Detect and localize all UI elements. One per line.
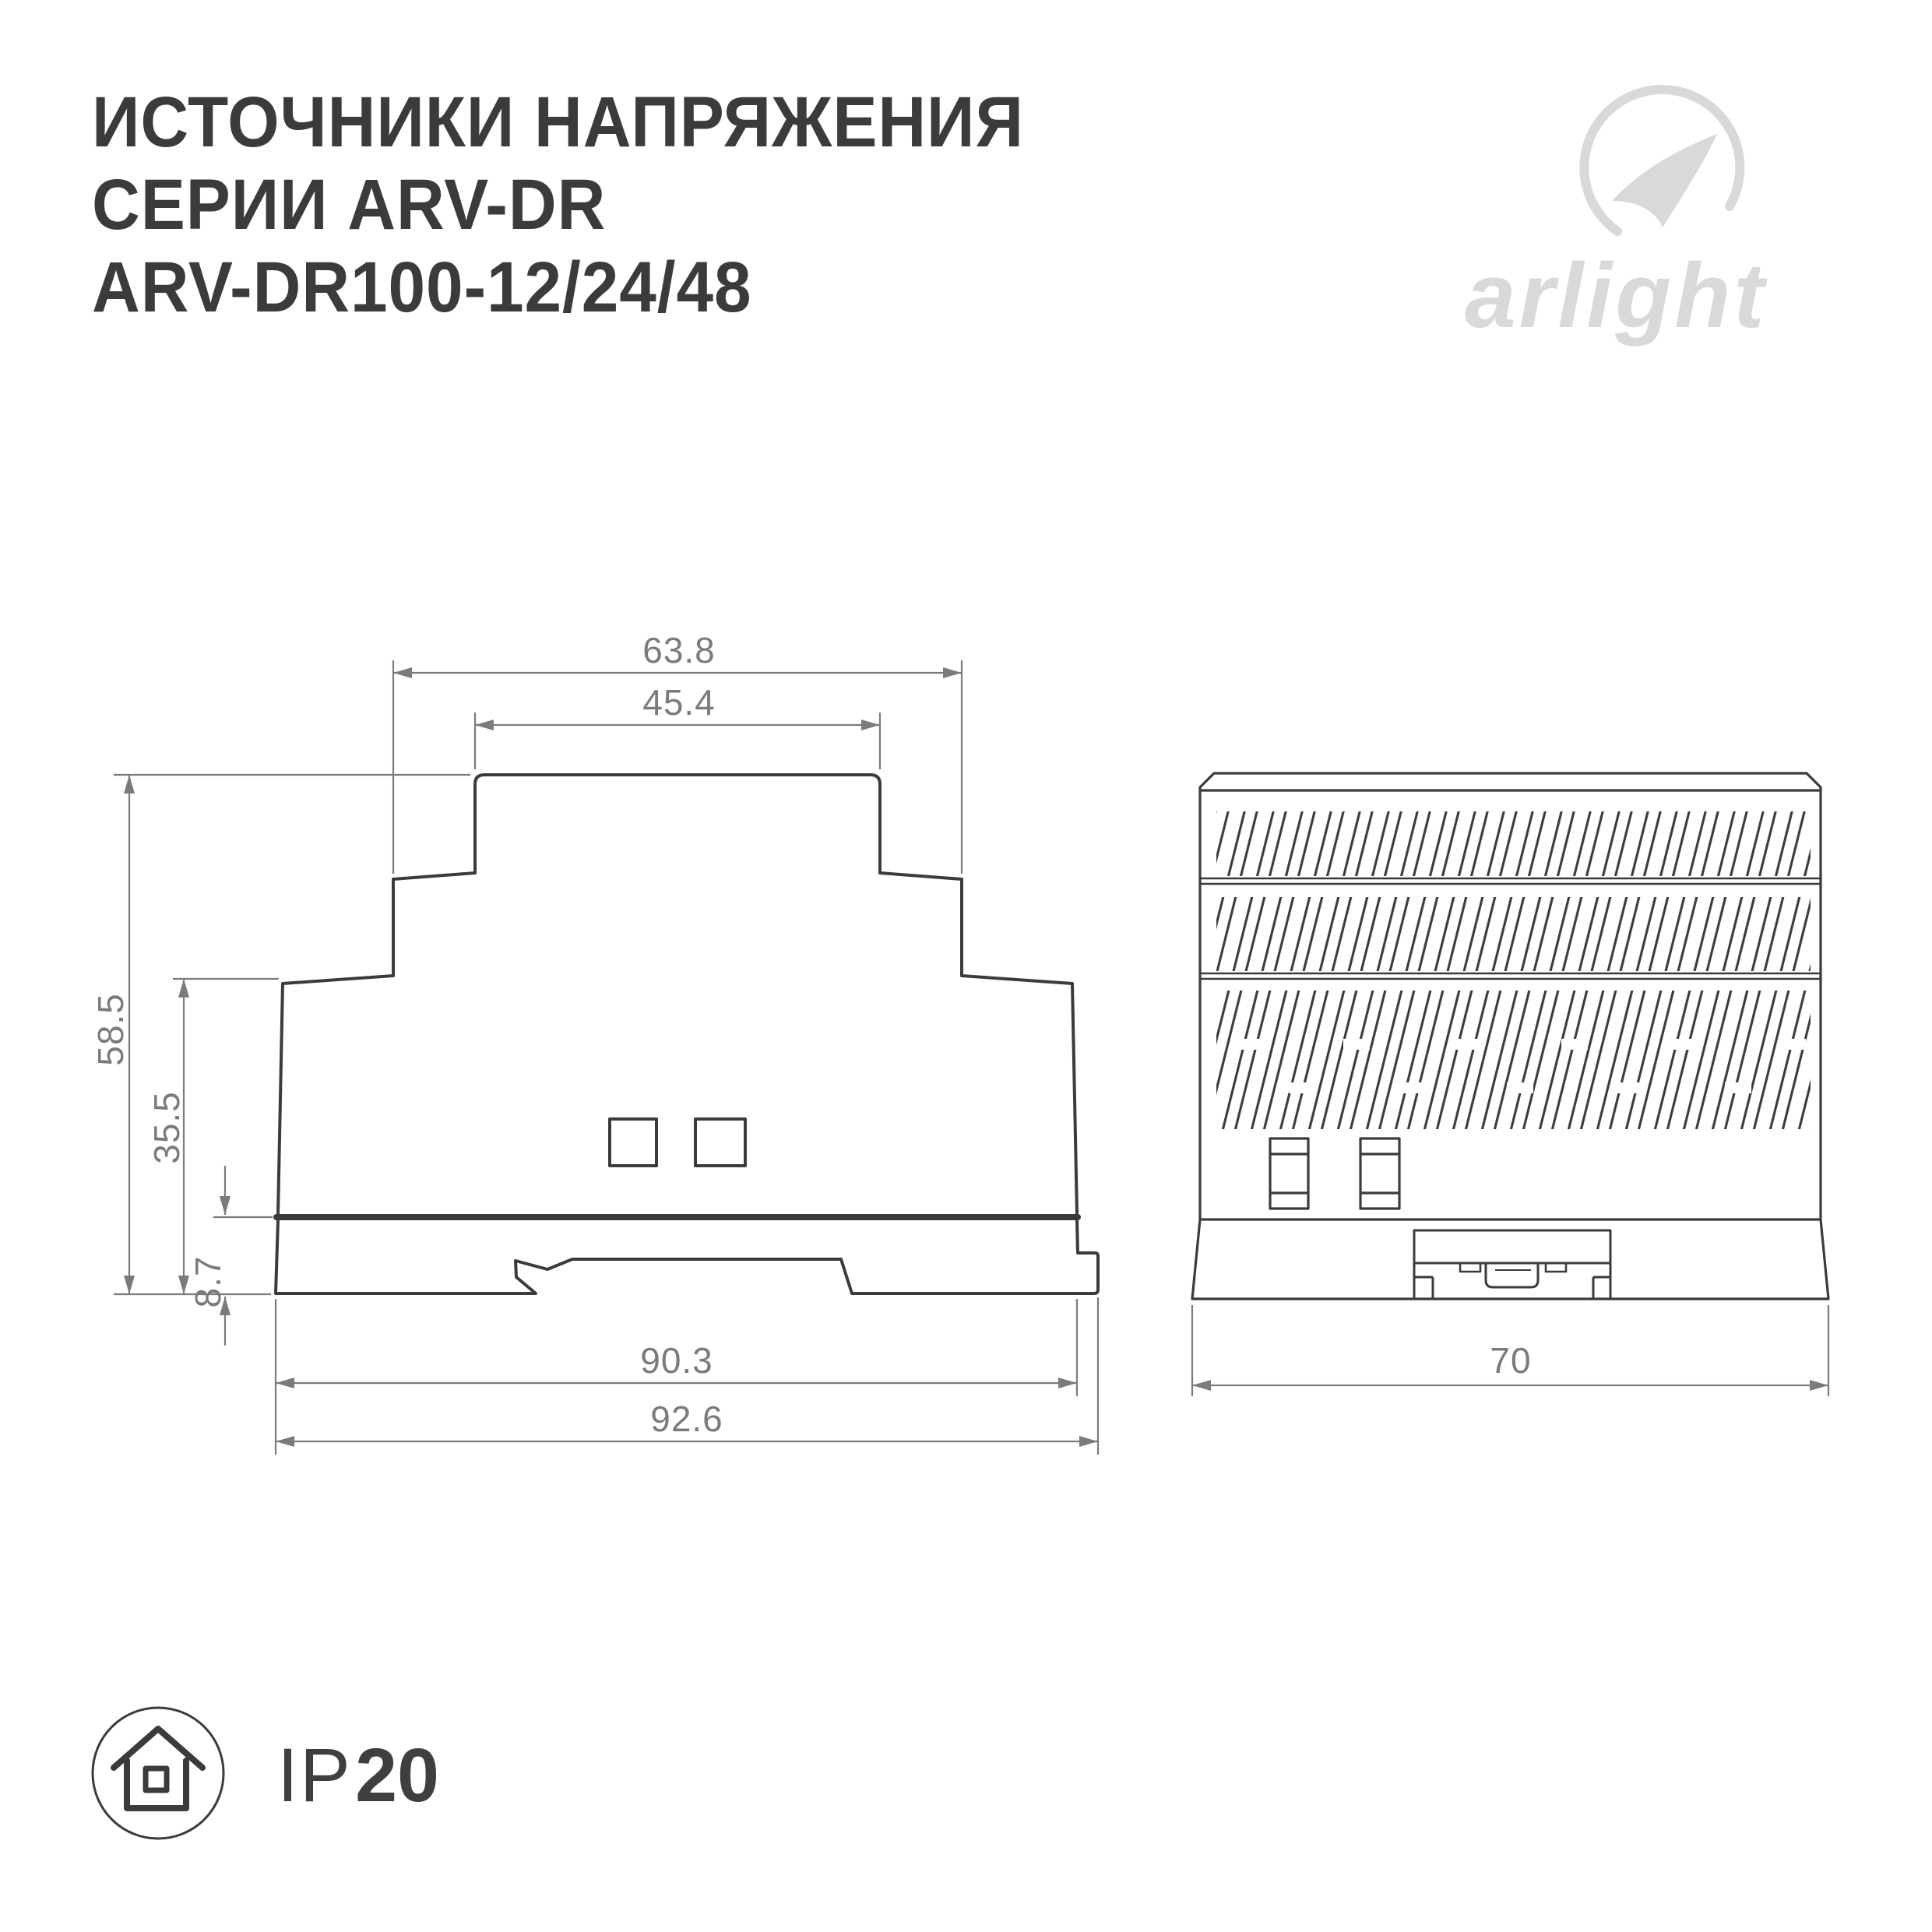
din-rail-clip [1414,1230,1610,1299]
dim-label-side-width: 70 [1490,1340,1531,1381]
ip-badge: IP 20 [93,1708,439,1839]
front-upper-outline [278,775,1077,1214]
house-icon [114,1729,202,1808]
swoosh-icon [1612,134,1717,227]
page: ИСТОЧНИКИ НАПРЯЖЕНИЯ СЕРИИ ARV-DR ARV-DR… [0,0,1932,1932]
drawing-sheet: arlight [0,0,1932,1932]
ip-rating-value: 20 [355,1733,439,1818]
vent-band-3 [1216,991,1811,1129]
vent-band-1 [1216,811,1811,876]
dim-label-upper-height: 35.5 [146,1091,187,1164]
dim-label-total-height: 58.5 [90,993,131,1066]
dim-label-step-width: 63.8 [642,630,716,670]
front-led-window-left [610,1119,656,1166]
front-view-dim-labels: 63.8 45.4 58.5 35.5 8.7 90.3 92.6 [90,630,723,1439]
dim-label-overall-width: 92.6 [650,1399,723,1439]
dim-label-body-width: 90.3 [640,1340,713,1381]
dim-label-base-height: 8.7 [188,1256,228,1308]
terminal-block-left [1270,1138,1308,1209]
front-led-window-right [695,1119,745,1166]
terminal-block-right [1360,1138,1399,1209]
arlight-logo: arlight [1465,90,1768,347]
front-view [276,775,1098,1293]
side-view [1192,773,1828,1299]
vent-band-2 [1216,897,1811,971]
ip-rating-prefix: IP [277,1733,352,1818]
dim-label-top-width: 45.4 [642,682,716,723]
front-lower-outline [276,1220,1098,1293]
logo-wordmark: arlight [1465,245,1768,347]
front-view-dimensions [114,660,1098,1455]
ip-rating-text: IP 20 [277,1733,439,1818]
